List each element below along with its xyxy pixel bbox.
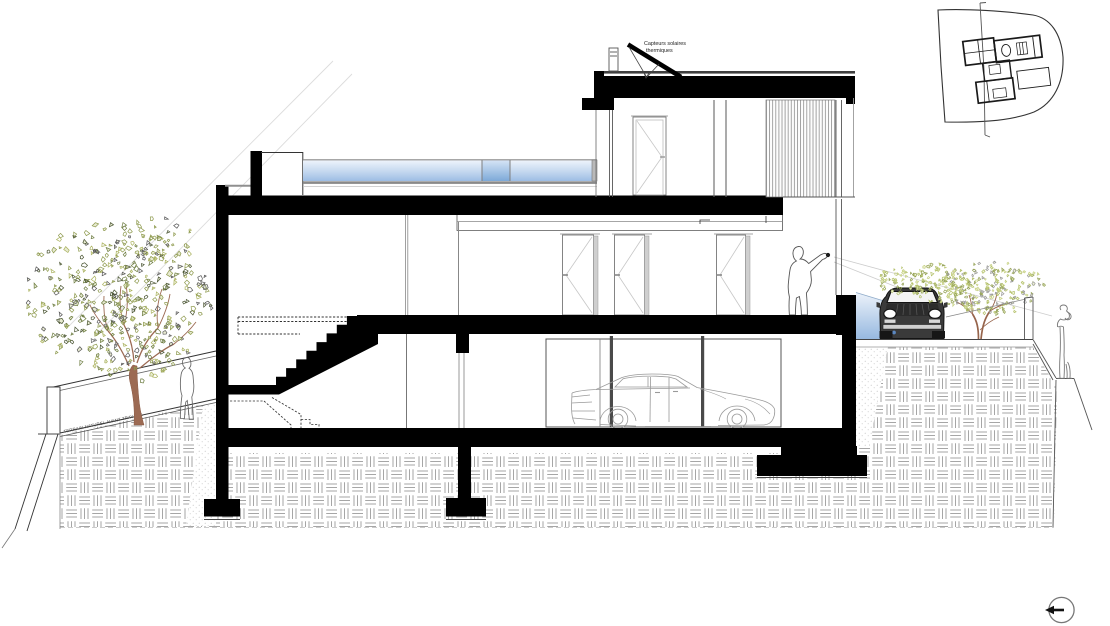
svg-text:Capteurs solaires: Capteurs solaires	[644, 41, 686, 47]
svg-text:thermiques: thermiques	[646, 48, 673, 54]
